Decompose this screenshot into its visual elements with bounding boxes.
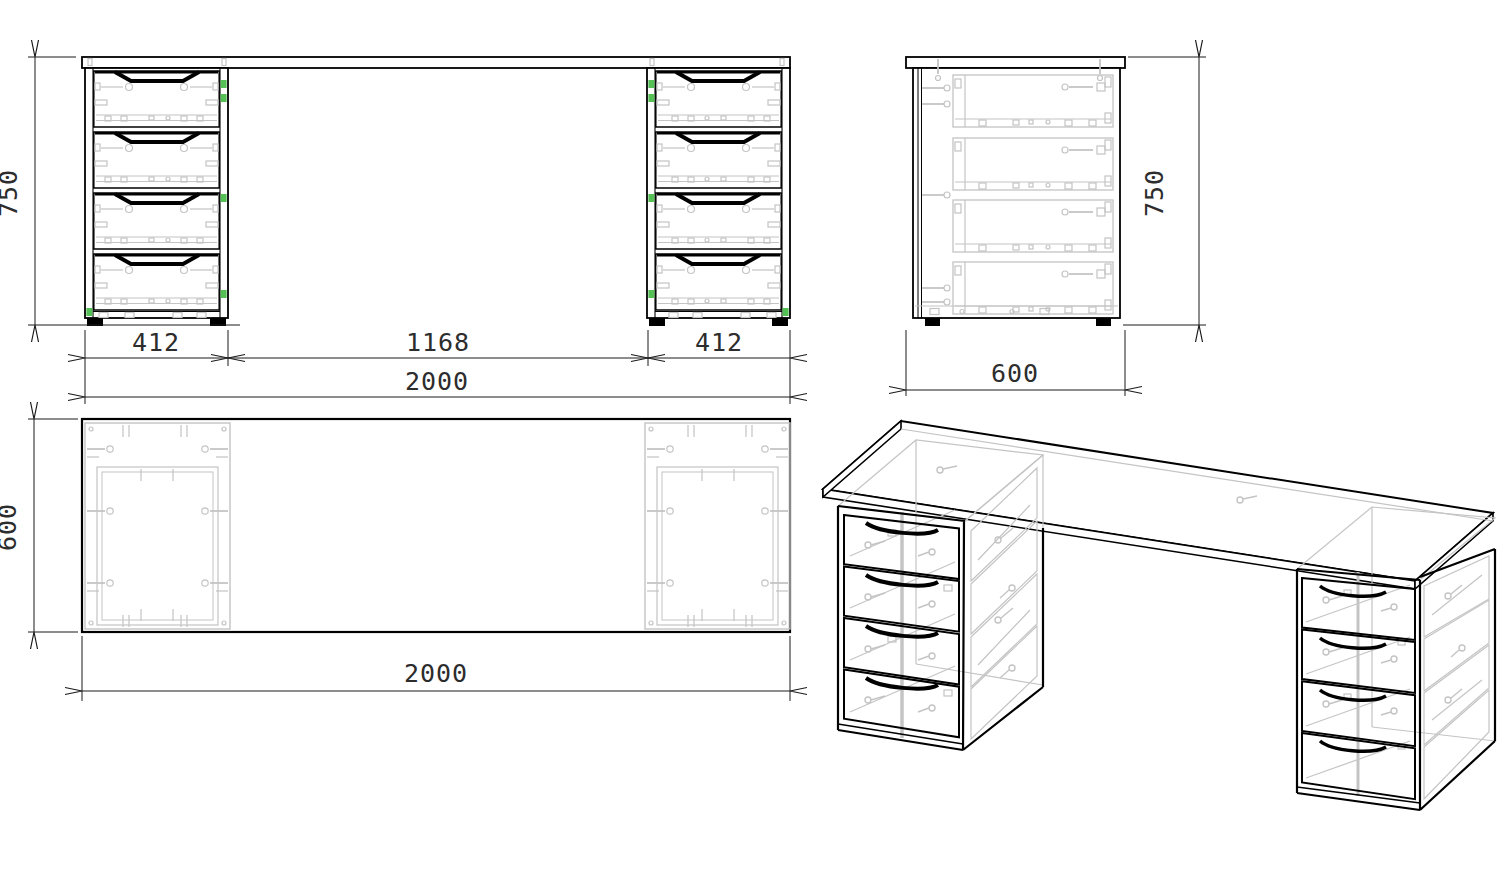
front-pedestals: [85, 68, 790, 326]
front-desktop: [82, 57, 790, 68]
dim-top-width: 2000: [82, 636, 790, 701]
dim-top-depth-label: 600: [0, 503, 22, 551]
dim-front-height-label: 750: [0, 169, 23, 217]
dim-front-overall-width-label: 2000: [405, 367, 469, 396]
dim-front-center-width-label: 1168: [406, 328, 470, 357]
top-view: [82, 419, 790, 632]
side-right-foot: [1096, 318, 1111, 326]
dim-front-widths: 412 1168 412 2000: [85, 328, 790, 404]
dim-side-depth-label: 600: [991, 359, 1039, 388]
front-view: [82, 57, 790, 326]
dim-side-height-label: 750: [1140, 169, 1169, 217]
front-left-pedestal: [85, 68, 228, 326]
dim-top-width-label: 2000: [404, 659, 468, 688]
iso-right-drawer-handles: [1320, 586, 1386, 751]
side-view: [906, 57, 1125, 326]
dim-side-height: 750: [1123, 57, 1206, 325]
front-right-pedestal: [647, 68, 790, 326]
isometric-view: [823, 421, 1495, 810]
dim-front-right-width-label: 412: [695, 328, 743, 357]
technical-drawing-canvas: 750 412 1168 412 2000: [0, 0, 1510, 872]
dim-front-left-width-label: 412: [132, 328, 180, 357]
dim-side-depth: 600: [906, 330, 1125, 396]
dim-top-depth: 600: [0, 419, 78, 632]
side-left-foot: [925, 318, 940, 326]
top-desktop-outline: [82, 419, 790, 632]
